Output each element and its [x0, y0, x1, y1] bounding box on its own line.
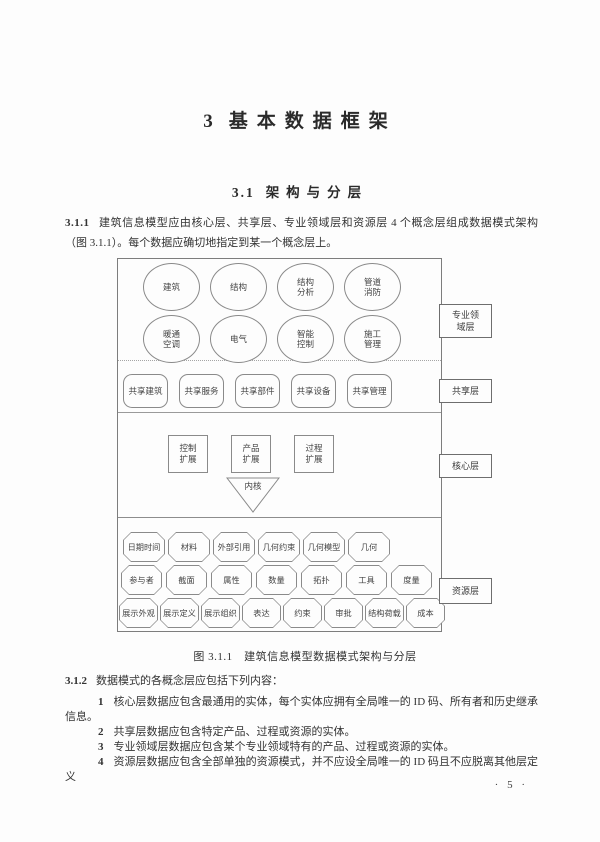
diagram-outer-rect: 建筑 结构 结构 分析 管道 消防 暖通 空调 电气 智能 控制 施工 管理 共…	[117, 258, 442, 632]
core-node-process-extension: 过程 扩展	[294, 435, 334, 473]
section-title: 3.1架构与分层	[0, 181, 600, 201]
kernel-label: 内核	[226, 480, 280, 492]
clause-3-1-1-number: 3.1.1	[65, 217, 90, 229]
clause-3-1-2-text: 数据模式的各概念层应包括下列内容：	[96, 675, 283, 687]
section-title-text: 架构与分层	[266, 185, 369, 200]
document-page: 3基本数据框架 3.1架构与分层 3.1.1建筑信息模型应由核心层、共享层、专业…	[0, 0, 600, 842]
resource-row-3: 展示外观 展示定义 展示组织 表达 约束 审批 结构荷载 成本	[118, 598, 441, 628]
domain-node-electrical: 电气	[210, 315, 267, 363]
chapter-title-text: 基本数据框架	[229, 111, 397, 132]
resource-node-datetime: 日期时间	[123, 532, 165, 562]
layer-label-core: 核心层	[439, 454, 492, 478]
chapter-number: 3	[203, 111, 213, 132]
resource-node-participant: 参与者	[121, 565, 162, 595]
resource-node-presentation-appearance: 展示外观	[119, 598, 158, 628]
clause-3-1-1-text: 建筑信息模型应由核心层、共享层、专业领域层和资源层 4 个概念层组成数据模式架构…	[65, 217, 538, 249]
layer-label-shared: 共享层	[439, 379, 492, 403]
clause-item-2: 2共享层数据应包含特定产品、过程或资源的实体。	[65, 725, 538, 740]
clause-item-3: 3专业领域层数据应包含某个专业领域特有的产品、过程或资源的实体。	[65, 740, 538, 755]
domain-node-structural-analysis: 结构 分析	[277, 263, 334, 311]
domain-node-structure: 结构	[210, 263, 267, 311]
resource-node-representation: 表达	[242, 598, 281, 628]
resource-layer-band: 日期时间 材料 外部引用 几何约束 几何模型 几何 参与者 截面 属性 数量 拓…	[118, 518, 441, 631]
resource-node-constraint: 约束	[283, 598, 322, 628]
layer-label-resource: 资源层	[439, 578, 492, 604]
resource-node-presentation-organization: 展示组织	[201, 598, 240, 628]
domain-circle-row-1: 建筑 结构 结构 分析 管道 消防	[118, 263, 441, 311]
domain-node-building: 建筑	[143, 263, 200, 311]
clause-3-1-2-number: 3.1.2	[65, 675, 87, 687]
domain-node-hvac: 暖通 空调	[143, 315, 200, 363]
shared-node-management: 共享管理	[347, 374, 392, 408]
shared-node-equipment: 共享设备	[291, 374, 336, 408]
resource-row-2: 参与者 截面 属性 数量 拓扑 工具 度量	[118, 565, 441, 595]
domain-node-construction-mgmt: 施工 管理	[344, 315, 401, 363]
resource-node-section: 截面	[166, 565, 207, 595]
core-node-row: 控制 扩展 产品 扩展 过程 扩展	[118, 413, 441, 473]
kernel-node: 内核	[226, 477, 280, 513]
core-node-control-extension: 控制 扩展	[168, 435, 208, 473]
resource-node-material: 材料	[168, 532, 210, 562]
clause-3-1-1: 3.1.1建筑信息模型应由核心层、共享层、专业领域层和资源层 4 个概念层组成数…	[65, 213, 538, 253]
domain-layer-band: 建筑 结构 结构 分析 管道 消防 暖通 空调 电气 智能 控制 施工 管理	[118, 259, 441, 361]
resource-node-attribute: 属性	[211, 565, 252, 595]
resource-node-geometric-model: 几何模型	[303, 532, 345, 562]
page-number: · 5 ·	[495, 779, 528, 791]
domain-node-piping-fire: 管道 消防	[344, 263, 401, 311]
figure-caption: 图 3.1.1 建筑信息模型数据模式架构与分层	[65, 648, 545, 664]
shared-node-row: 共享建筑 共享服务 共享部件 共享设备 共享管理	[118, 374, 441, 408]
shared-node-building: 共享建筑	[123, 374, 168, 408]
resource-node-topology: 拓扑	[301, 565, 342, 595]
resource-row-1: 日期时间 材料 外部引用 几何约束 几何模型 几何	[118, 532, 441, 562]
resource-node-external-reference: 外部引用	[213, 532, 255, 562]
core-node-product-extension: 产品 扩展	[231, 435, 271, 473]
resource-node-presentation-definition: 展示定义	[160, 598, 199, 628]
resource-node-geometry: 几何	[348, 532, 390, 562]
section-number: 3.1	[232, 185, 255, 200]
resource-node-measure: 度量	[391, 565, 432, 595]
resource-node-approval: 审批	[324, 598, 363, 628]
domain-circle-row-2: 暖通 空调 电气 智能 控制 施工 管理	[118, 315, 441, 363]
chapter-title: 3基本数据框架	[0, 106, 600, 133]
shared-layer-band: 共享建筑 共享服务 共享部件 共享设备 共享管理	[118, 361, 441, 413]
figure-3-1-1: 建筑 结构 结构 分析 管道 消防 暖通 空调 电气 智能 控制 施工 管理 共…	[117, 258, 497, 632]
clause-3-1-2: 3.1.2数据模式的各概念层应包括下列内容：	[65, 674, 538, 689]
clause-3-1-2-block: 3.1.2数据模式的各概念层应包括下列内容： 1核心层数据应包含最通用的实体，每…	[65, 674, 538, 785]
resource-node-quantity: 数量	[256, 565, 297, 595]
resource-node-structural-load: 结构荷载	[365, 598, 404, 628]
clause-item-4: 4资源层数据应包含全部单独的资源模式，并不应设全局唯一的 ID 码且不应脱离其他…	[65, 755, 538, 785]
domain-node-intelligent-control: 智能 控制	[277, 315, 334, 363]
shared-node-components: 共享部件	[235, 374, 280, 408]
layer-label-domain: 专业领 域层	[439, 304, 492, 338]
resource-node-tool: 工具	[346, 565, 387, 595]
shared-node-services: 共享服务	[179, 374, 224, 408]
core-layer-band: 控制 扩展 产品 扩展 过程 扩展 内核	[118, 413, 441, 518]
clause-item-1: 1核心层数据应包含最通用的实体，每个实体应拥有全局唯一的 ID 码、所有者和历史…	[65, 695, 538, 725]
resource-node-geometric-constraint: 几何约束	[258, 532, 300, 562]
